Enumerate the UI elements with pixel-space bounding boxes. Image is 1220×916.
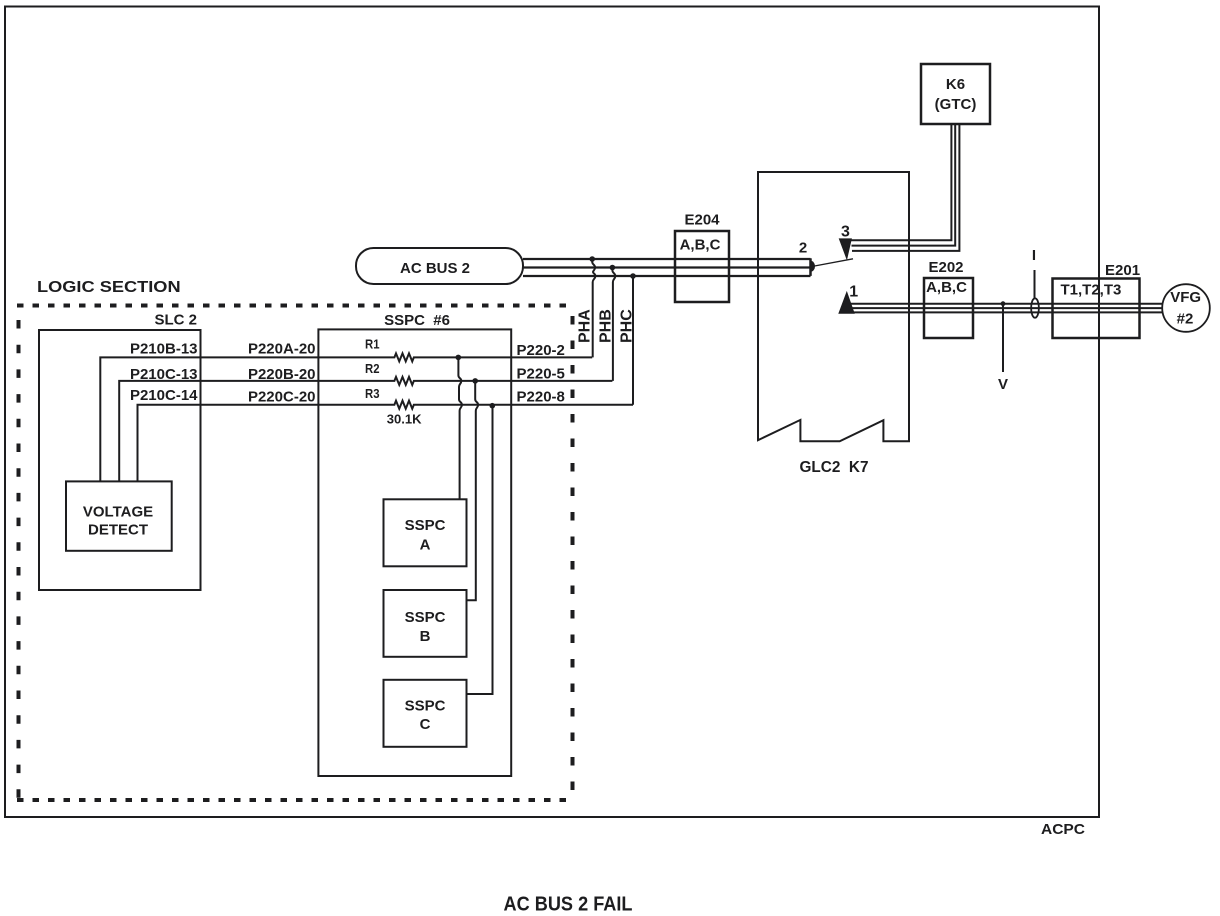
svg-text:A,B,C: A,B,C [680,236,721,253]
svg-text:V: V [998,376,1008,393]
svg-text:#2: #2 [1177,311,1194,328]
svg-text:I: I [1032,247,1036,264]
svg-text:VOLTAGE: VOLTAGE [83,504,153,521]
svg-text:2: 2 [799,240,807,257]
svg-text:P220-5: P220-5 [517,366,565,383]
svg-text:P210B-13: P210B-13 [130,340,198,357]
svg-text:P220C-20: P220C-20 [248,389,316,406]
svg-text:AC BUS 2: AC BUS 2 [400,260,470,277]
svg-text:E204: E204 [684,212,720,229]
svg-text:P220A-20: P220A-20 [248,340,316,357]
svg-text:SLC 2: SLC 2 [154,312,197,329]
svg-text:B: B [420,628,431,645]
svg-text:AC BUS 2 FAIL: AC BUS 2 FAIL [504,893,633,915]
svg-text:C: C [420,716,431,733]
svg-text:DETECT: DETECT [88,522,148,539]
svg-text:R1: R1 [365,337,380,352]
svg-text:SSPC: SSPC [405,517,446,534]
svg-text:A: A [420,536,431,553]
svg-text:GLC2 K7: GLC2 K7 [800,459,869,476]
svg-text:ACPC: ACPC [1041,821,1085,838]
svg-text:E201: E201 [1105,262,1140,279]
svg-text:P220-2: P220-2 [517,342,565,359]
svg-text:SSPC: SSPC [405,609,446,626]
svg-text:P220B-20: P220B-20 [248,366,316,383]
svg-text:T1,T2,T3: T1,T2,T3 [1061,282,1122,299]
svg-text:P210C-13: P210C-13 [130,366,198,383]
svg-text:P210C-14: P210C-14 [130,387,198,404]
svg-text:R2: R2 [365,361,380,376]
svg-text:VFG: VFG [1170,289,1201,306]
svg-text:30.1K: 30.1K [387,412,422,427]
svg-text:SSPC #6: SSPC #6 [384,312,450,329]
svg-text:A,B,C: A,B,C [926,279,967,296]
svg-text:E202: E202 [928,259,963,276]
svg-text:3: 3 [841,224,850,241]
svg-text:K6: K6 [946,76,965,93]
svg-text:SSPC: SSPC [405,697,446,714]
svg-text:PHA: PHA [576,309,593,343]
svg-text:1: 1 [849,284,858,301]
svg-text:LOGIC SECTION: LOGIC SECTION [37,279,181,296]
svg-text:P220-8: P220-8 [517,389,565,406]
svg-text:R3: R3 [365,386,380,401]
svg-text:(GTC): (GTC) [935,96,977,113]
